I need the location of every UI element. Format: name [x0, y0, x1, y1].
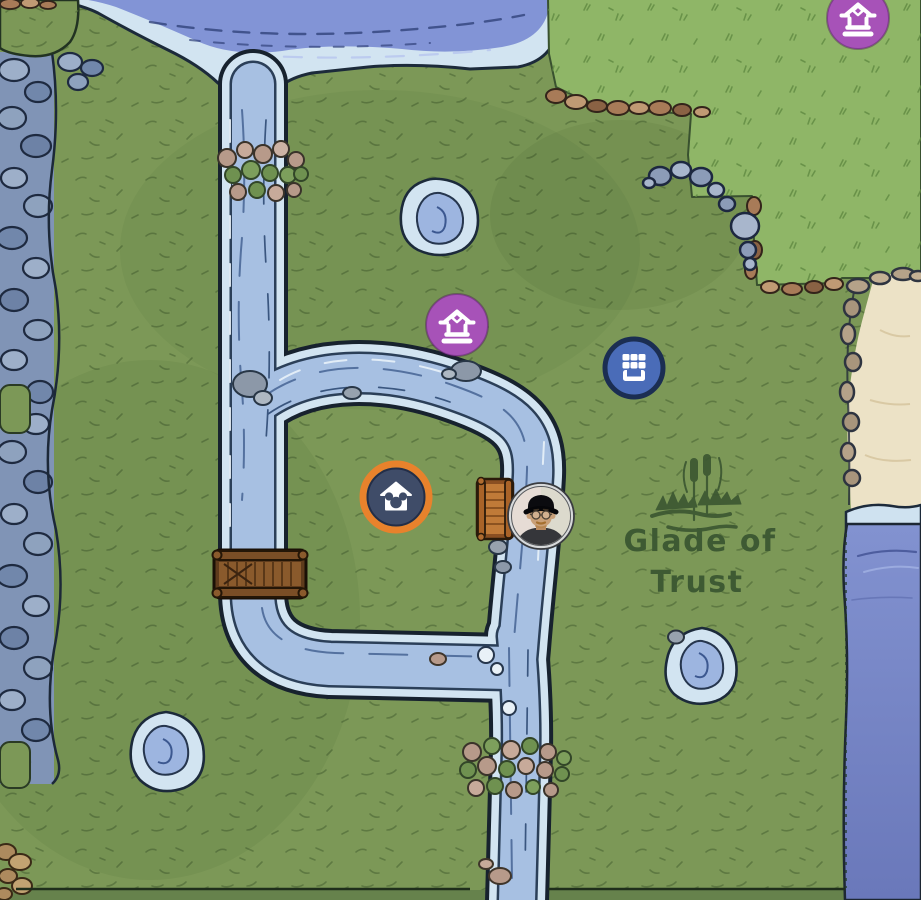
map-bottom-strip: [0, 890, 848, 900]
market-stall-icon: [623, 354, 646, 381]
glade-of-trust-map: Glade of Trust: [0, 0, 921, 900]
region-label-line1: Glade of: [623, 524, 776, 559]
market-stall-marker[interactable]: [605, 339, 663, 397]
well-marker-river-bend[interactable]: [426, 294, 488, 356]
home-marker[interactable]: [363, 464, 429, 530]
pond-right: [666, 628, 737, 704]
well-marker-disc: [426, 294, 488, 356]
pond-top: [401, 179, 478, 255]
wooden-bridge-east: [477, 478, 513, 541]
lake-south-east: [843, 505, 921, 900]
region-label-line2: Trust: [650, 565, 743, 600]
wooden-bridge-west: [213, 550, 308, 598]
map-stage: Glade of Trust: [0, 0, 921, 900]
pond-bottom-left: [131, 712, 204, 791]
sand-bank: [840, 268, 921, 512]
player-marker[interactable]: [508, 483, 574, 549]
